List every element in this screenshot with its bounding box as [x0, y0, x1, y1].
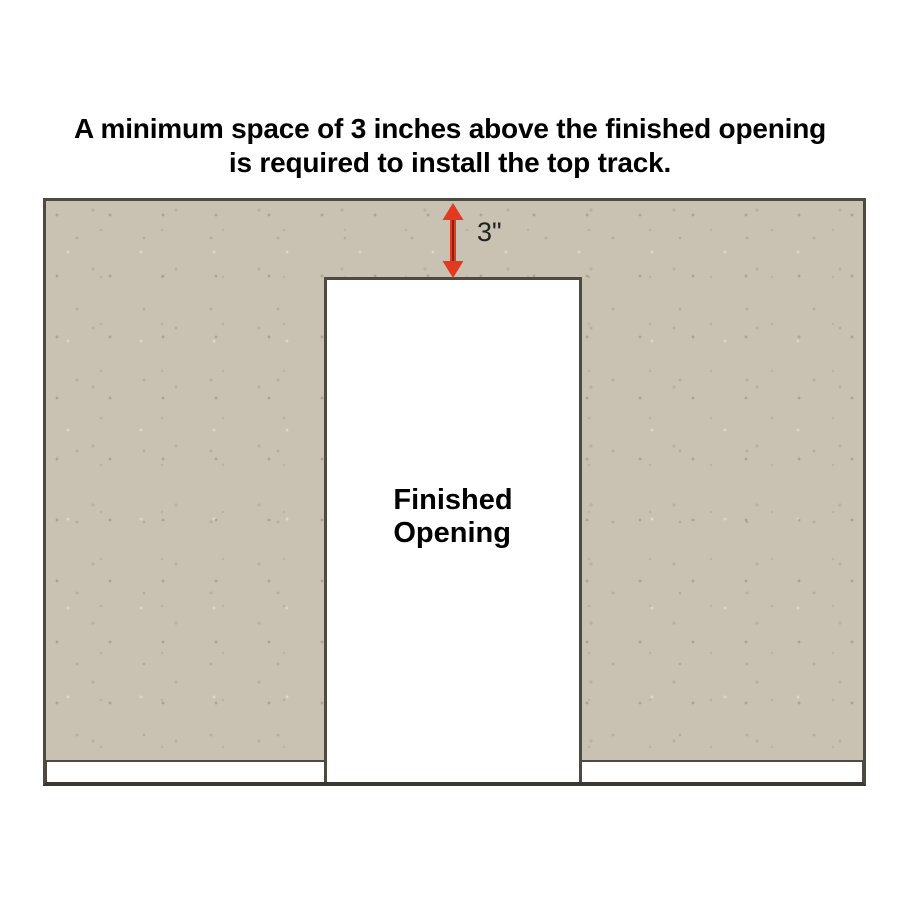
opening-label: Finished Opening: [393, 484, 512, 550]
instruction-heading: A minimum space of 3 inches above the fi…: [0, 112, 900, 180]
dimension-label: 3": [477, 219, 502, 246]
instruction-heading-line1: A minimum space of 3 inches above the fi…: [0, 112, 900, 146]
opening-label-line2: Opening: [393, 517, 512, 550]
vertical-double-arrow-icon: [439, 203, 467, 278]
finished-opening: Finished Opening: [324, 277, 582, 782]
instruction-heading-line2: is required to install the top track.: [0, 146, 900, 180]
baseboard-left: [45, 760, 327, 782]
diagram-canvas: A minimum space of 3 inches above the fi…: [0, 0, 900, 900]
baseboard-right: [579, 760, 864, 782]
opening-label-line1: Finished: [393, 484, 512, 517]
